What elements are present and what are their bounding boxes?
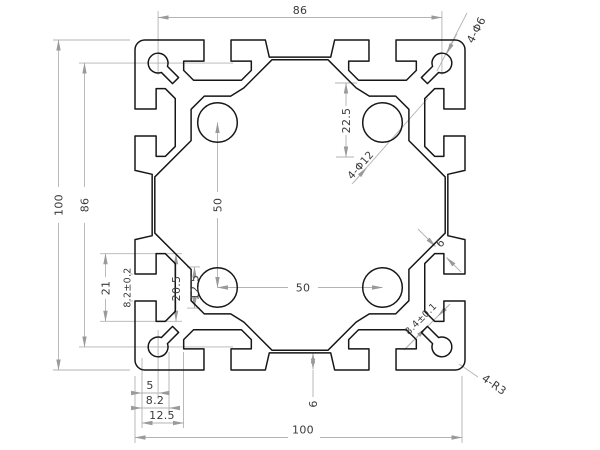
extension-lines <box>53 11 462 443</box>
dim-slot-opening: 8.2±0.2 <box>118 261 134 315</box>
dim-top-hole-spacing: 86 <box>293 4 308 17</box>
dim-web-thickness: 6 <box>433 236 447 250</box>
central-cavity <box>155 60 445 350</box>
dim-overall-height: 100 <box>53 194 66 216</box>
dim-bore-spacing-vertical: 50 <box>212 198 225 213</box>
dim-bottom-wall: 6 <box>307 400 320 407</box>
dimension-lines <box>59 13 479 438</box>
dimension-labels: 86 4-Φ6 100 86 21 8.2±0.2 20.5 12.5 50 2… <box>53 4 509 437</box>
corner-keyhole-top-right <box>421 53 451 83</box>
bore-circle-top-right <box>363 103 403 143</box>
corner-keyhole-top-left <box>148 53 178 83</box>
dim-stack-82: 8.2 <box>146 394 164 407</box>
dim-stack-125: 12.5 <box>149 409 175 422</box>
corner-keyhole-bottom-right <box>421 326 451 356</box>
dim-slot-depth: 12.5 <box>189 275 202 301</box>
technical-drawing: 86 4-Φ6 100 86 21 8.2±0.2 20.5 12.5 50 2… <box>0 0 600 450</box>
dim-overall-width: 100 <box>292 424 314 437</box>
dim-stack-5: 5 <box>146 379 153 392</box>
dim-bore-offset: 22.5 <box>340 108 353 134</box>
label-corner-radius: 4-R3 <box>479 372 508 398</box>
dim-bore-spacing-horizontal: 50 <box>296 282 311 295</box>
corner-keyhole-bottom-left <box>148 326 178 356</box>
dim-slot-cavity: 20.5 <box>170 276 183 302</box>
label-corner-holes: 4-Φ6 <box>464 15 489 46</box>
cad-drawing-page: 86 4-Φ6 100 86 21 8.2±0.2 20.5 12.5 50 2… <box>0 0 600 450</box>
dim-side-hole-spacing: 86 <box>79 198 92 213</box>
dim-slot-21: 21 <box>100 281 113 296</box>
label-center-bores: 4-Φ12 <box>345 149 376 182</box>
svg-text:8.2±0.2: 8.2±0.2 <box>123 267 134 307</box>
